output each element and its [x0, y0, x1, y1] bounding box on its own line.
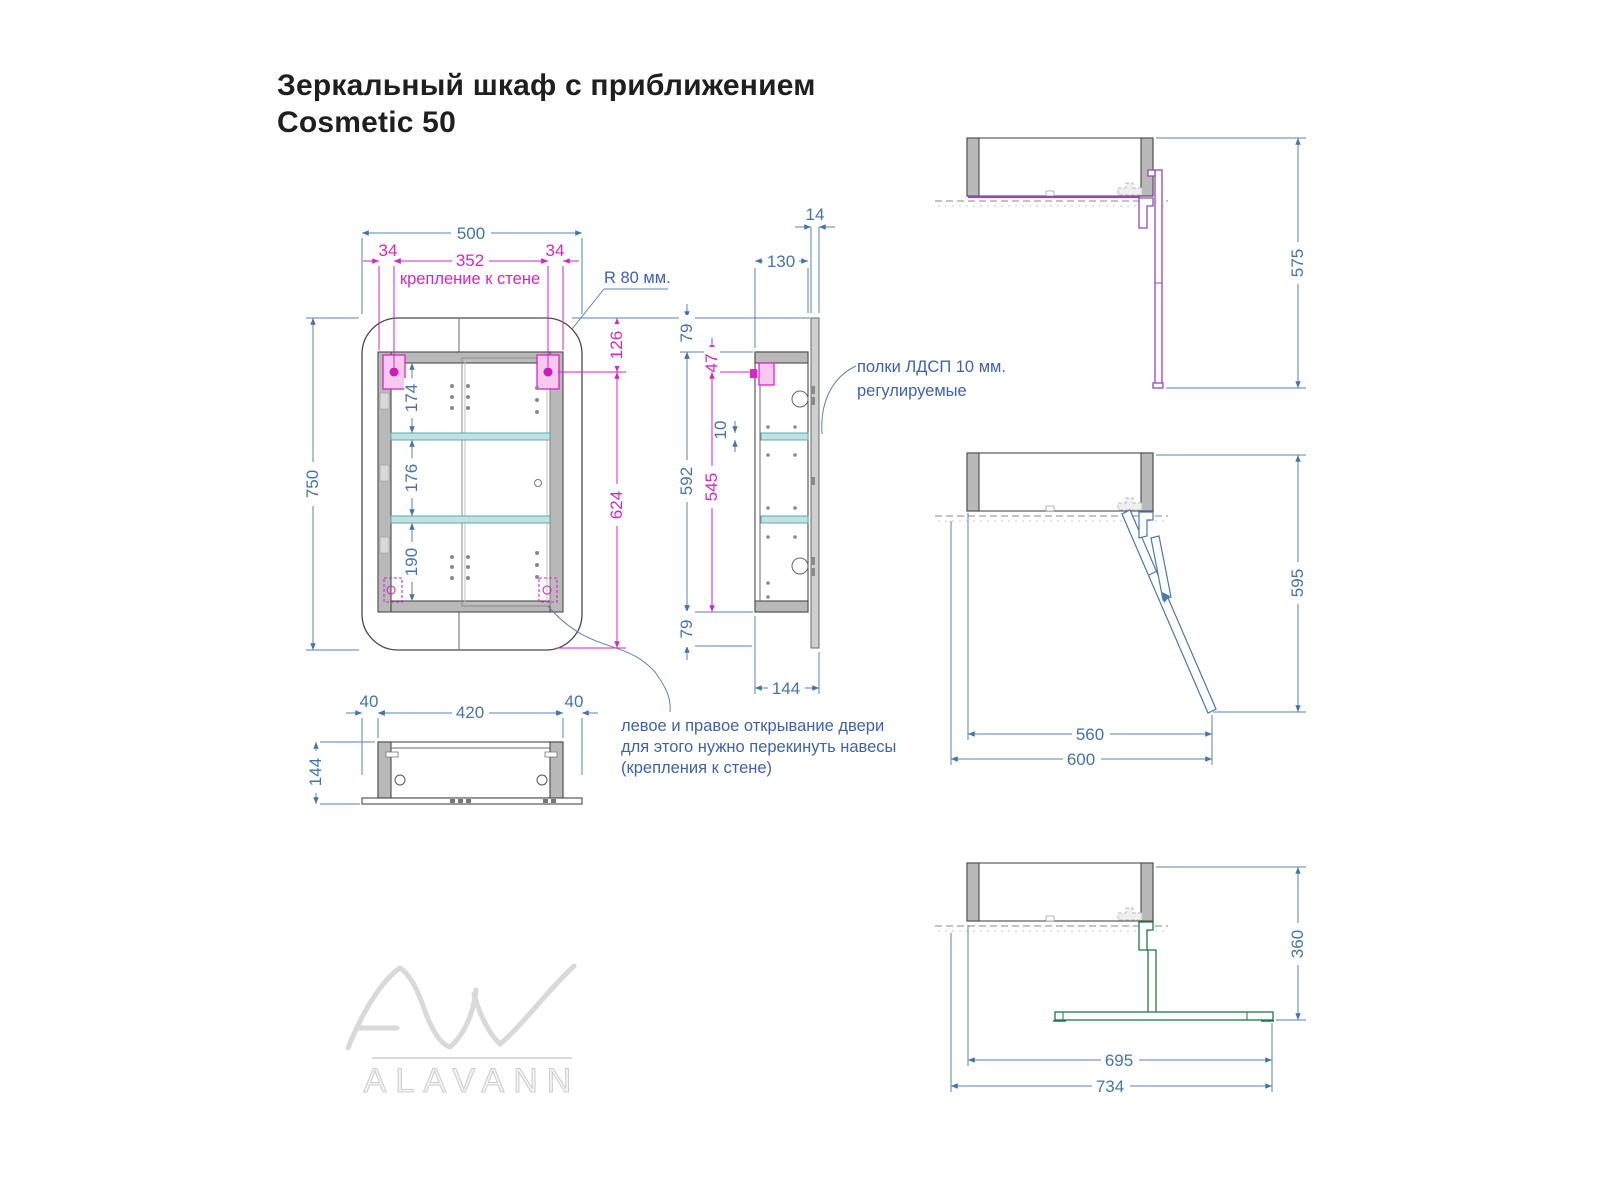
door-note-line-3: (крепления к стене)	[621, 759, 772, 777]
drawing-sheet: Зеркальный шкаф с приближением Cosmetic …	[0, 0, 1600, 1200]
side-view: 14 130 79 592 79 47 545 10	[677, 205, 1006, 698]
dim-front-height: 750	[303, 470, 322, 498]
door-opening-note: левое и правое открывание двери для этог…	[621, 717, 896, 777]
hinge-arm-90	[1139, 198, 1153, 228]
dim-top-to-hinge: 126	[607, 331, 626, 359]
dim-open45-total: 600	[1067, 750, 1095, 769]
dim-open45-to-tip: 560	[1076, 725, 1104, 744]
dim-bottom-inner-width: 420	[456, 703, 484, 722]
page-title: Зеркальный шкаф с приближением Cosmetic …	[277, 69, 816, 139]
dim-section-middle: 176	[402, 464, 421, 492]
door-note-line-2: для этого нужно перекинуть навесы	[621, 738, 896, 756]
glass-shelf-upper	[391, 433, 550, 440]
glass-shelf-lower	[391, 516, 550, 523]
dim-inner-height: 545	[702, 473, 721, 501]
dim-hinge-span: 352	[456, 251, 484, 270]
dim-open180-extent: 360	[1288, 930, 1307, 958]
dim-hinge-inset-right: 34	[546, 241, 565, 260]
dim-depth: 130	[767, 252, 795, 271]
dim-open180-to-tip: 695	[1105, 1051, 1133, 1070]
shelves-note-line-2: регулируемые	[857, 382, 967, 400]
logo-brand-text: ALAVANN	[364, 1062, 581, 1100]
brand-logo: ALAVANN	[348, 966, 580, 1100]
title-line-1: Зеркальный шкаф с приближением	[277, 69, 816, 102]
dim-hinge-to-bottom: 624	[607, 491, 626, 519]
dim-bottom-edge-left: 40	[360, 692, 379, 711]
dim-hinge-offset: 47	[702, 354, 721, 373]
top-view-open-45: 595 560 600	[935, 453, 1307, 769]
door-note-line-1: левое и правое открывание двери	[621, 717, 884, 735]
technical-drawing: Зеркальный шкаф с приближением Cosmetic …	[0, 0, 1600, 1200]
dim-top-overhang: 79	[677, 324, 696, 343]
dim-door-thickness: 14	[806, 205, 825, 224]
dim-bottom-height: 144	[306, 758, 325, 786]
corner-radius-label: R 80 мм.	[604, 269, 671, 287]
title-line-2: Cosmetic 50	[277, 106, 456, 139]
door-open-90	[1155, 170, 1162, 386]
dim-shelf-thickness: 10	[711, 421, 730, 440]
mirror-plate-edge	[362, 798, 582, 804]
dim-open180-total: 734	[1096, 1077, 1124, 1096]
logo-monogram-a	[348, 968, 426, 1048]
door-open-45	[1122, 510, 1216, 713]
hinge-arm-180	[1139, 922, 1153, 950]
hinge-arm-45	[1139, 512, 1153, 538]
dim-front-width: 500	[457, 224, 485, 243]
dim-box-height: 592	[677, 467, 696, 495]
dim-total-depth: 144	[772, 679, 800, 698]
top-view-open-180: 360 695 734	[935, 863, 1307, 1096]
top-view-open-90: 575	[935, 138, 1307, 388]
door-open-180	[1055, 1012, 1273, 1020]
dim-open45-extent: 595	[1288, 569, 1307, 597]
dim-section-bottom: 190	[402, 548, 421, 576]
dim-section-top: 174	[402, 384, 421, 412]
dim-bottom-edge-right: 40	[565, 692, 584, 711]
wall-mount-label: крепление к стене	[400, 270, 540, 288]
dim-open90-extent: 575	[1288, 249, 1307, 277]
dim-bottom-overhang: 79	[677, 620, 696, 639]
bottom-view: 420 40 40 144	[306, 692, 598, 804]
logo-monogram-w	[426, 990, 476, 1047]
shelves-note-line-1: полки ЛДСП 10 мм.	[857, 358, 1006, 376]
side-wall-bracket	[759, 363, 774, 385]
front-view: 500 352 34 34 крепление к стене R 80 мм.…	[303, 224, 810, 712]
hinge-extension-arm	[1148, 950, 1156, 1014]
dim-hinge-inset-left: 34	[379, 241, 398, 260]
